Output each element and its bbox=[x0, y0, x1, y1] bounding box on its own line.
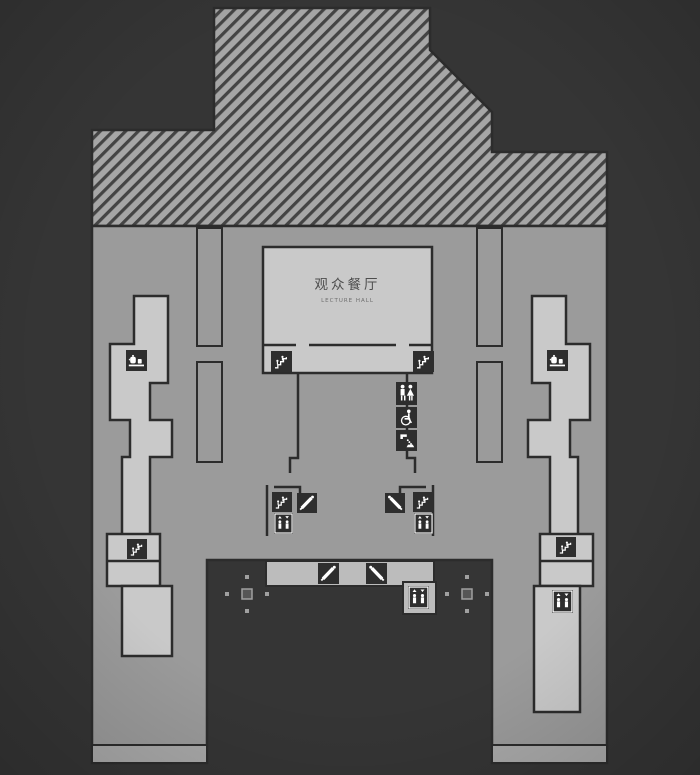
vignette-overlay bbox=[0, 0, 700, 775]
floor-plan-svg: 观众餐厅 LECTURE HALL bbox=[0, 0, 700, 775]
floor-plan-canvas: 观众餐厅 LECTURE HALL bbox=[0, 0, 700, 775]
